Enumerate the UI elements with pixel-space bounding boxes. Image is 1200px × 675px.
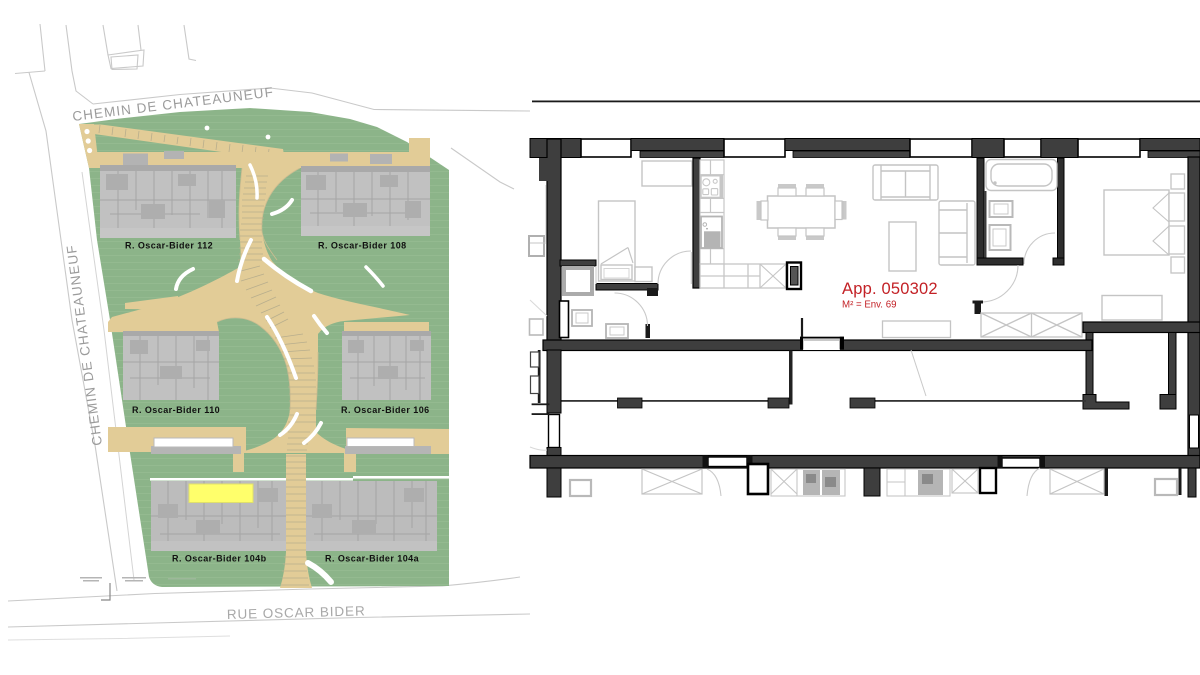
svg-text:M² = Env. 69: M² = Env. 69: [842, 300, 896, 311]
svg-text:R. Oscar-Bider 110: R. Oscar-Bider 110: [132, 405, 220, 415]
svg-text:R. Oscar-Bider 106: R. Oscar-Bider 106: [341, 405, 430, 415]
svg-text:R. Oscar-Bider 108: R. Oscar-Bider 108: [318, 241, 407, 251]
svg-text:App. 050302: App. 050302: [842, 280, 938, 298]
svg-text:R. Oscar-Bider 104b: R. Oscar-Bider 104b: [172, 554, 267, 564]
svg-text:R. Oscar-Bider 104a: R. Oscar-Bider 104a: [325, 554, 420, 564]
svg-text:R. Oscar-Bider 112: R. Oscar-Bider 112: [125, 241, 213, 251]
